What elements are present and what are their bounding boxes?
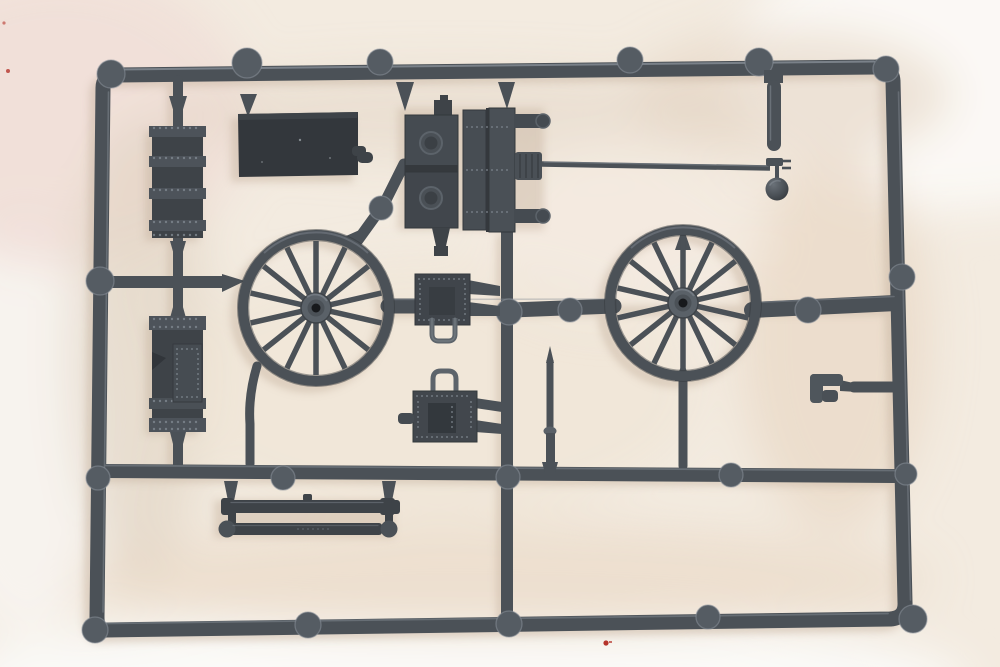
bracket-side-pin [398,413,414,424]
mid-runner-c [752,303,896,310]
photo-model-sprue: rectangular sprue frame with runners and… [0,0,1000,667]
part-riveted-plate: riveted hatch plate with inspection pane… [149,316,206,432]
part-flat-plate: dark flat rectangular plate [238,112,366,177]
sprue-photo-illustration: rectangular sprue frame with runners and… [0,0,1000,667]
part-rail-lower: rail with ball ends [219,521,398,538]
part-ribbed-box: ribbed ammunition box panel [149,126,206,238]
breech-side-stub [357,152,373,163]
